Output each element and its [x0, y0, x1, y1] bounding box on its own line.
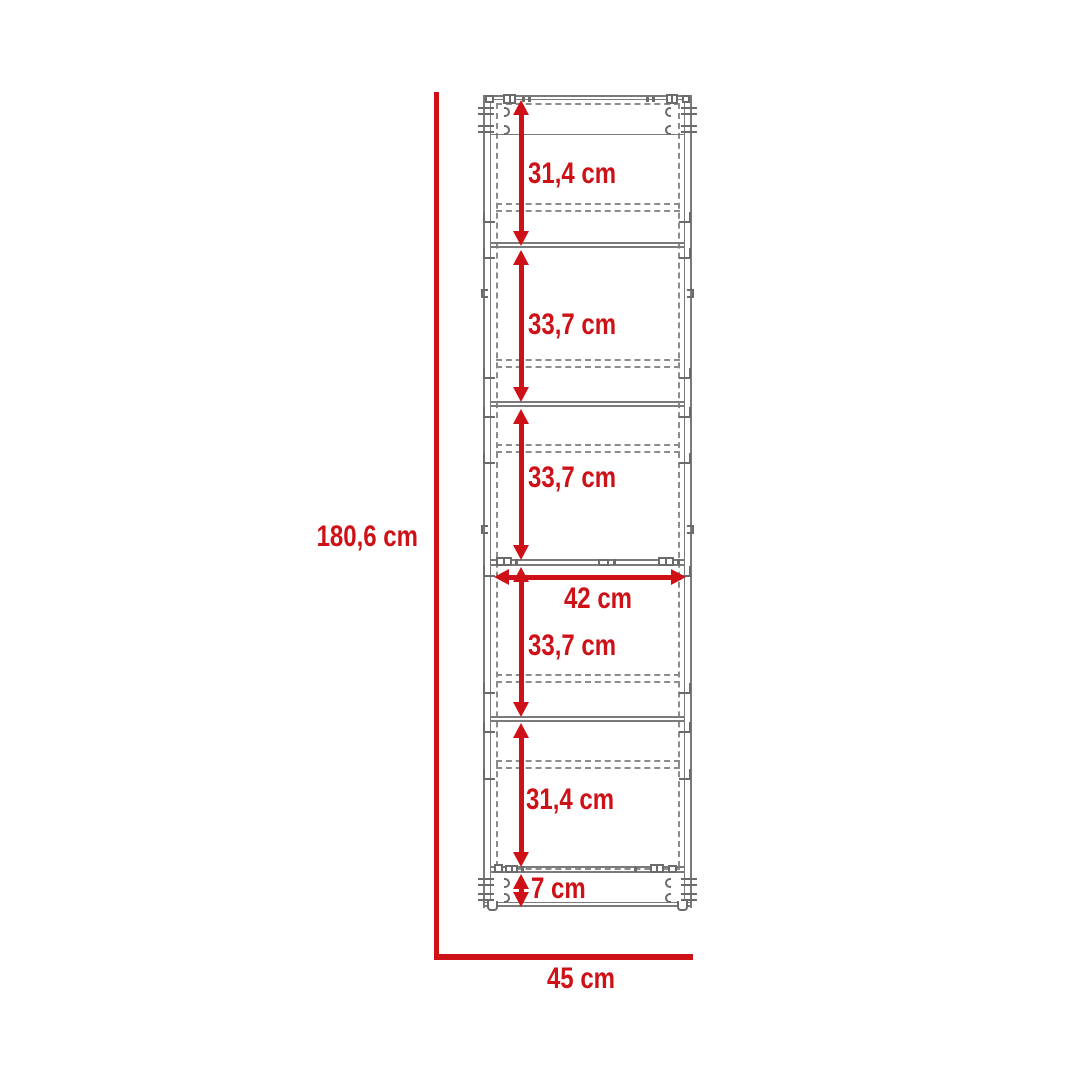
connector-bolt-mark	[681, 878, 697, 886]
connector-bolt-mark	[478, 893, 494, 901]
dowel-mark	[652, 97, 655, 102]
section-1-dimension-label: 31,4 cm	[528, 157, 616, 191]
section-4-dimension-label: 33,7 cm	[528, 629, 616, 663]
shelf-support-bracket	[483, 722, 495, 733]
side-pin-mark	[687, 289, 694, 298]
cam-lock-fitting	[598, 559, 609, 566]
shelf-support-bracket	[483, 212, 495, 223]
connector-cam-mark	[665, 125, 671, 135]
inner-width-label: 42 cm	[518, 582, 678, 616]
total-height-label: 180,6 cm	[290, 520, 418, 554]
cabinet-dimension-diagram: 180,6 cm 45 cm	[0, 0, 1090, 1090]
cam-lock-fitting	[496, 557, 512, 566]
total-width-label: 45 cm	[501, 962, 661, 996]
connector-cam-mark	[665, 878, 671, 888]
connector-cam-mark	[665, 893, 671, 903]
side-pin-mark	[481, 525, 488, 534]
cam-lock-fitting	[650, 864, 664, 873]
section-2-dimension-label: 33,7 cm	[528, 308, 616, 342]
dowel-mark	[646, 97, 649, 102]
base-height-label: 7 cm	[531, 872, 586, 906]
shelf-support-bracket	[483, 248, 495, 259]
connector-bolt-mark	[681, 125, 697, 133]
section-3-dimension-label: 33,7 cm	[528, 461, 616, 495]
shelf-1-bottom-line	[490, 246, 685, 248]
shelf-support-bracket	[679, 212, 691, 223]
shelf-support-bracket	[679, 769, 691, 780]
width-dimension-line	[434, 954, 693, 960]
cam-lock-fitting	[494, 864, 503, 873]
shelf-support-bracket	[679, 368, 691, 379]
right-foot	[677, 901, 688, 911]
shelf-support-bracket	[679, 407, 691, 418]
height-dimension-line	[434, 92, 439, 960]
left-foot	[487, 901, 498, 911]
shelf-4-bottom-line	[490, 720, 685, 722]
connector-bolt-mark	[681, 107, 697, 115]
cabinet-left-dashed-line	[496, 103, 498, 867]
connector-cam-mark	[665, 107, 671, 117]
connector-bolt-mark	[478, 878, 494, 886]
dowel-mark	[613, 559, 616, 565]
shelf-support-bracket	[679, 453, 691, 464]
shelf-support-bracket	[483, 407, 495, 418]
connector-bolt-mark	[681, 893, 697, 901]
cam-lock-fitting	[666, 94, 678, 104]
shelf-support-bracket	[679, 248, 691, 259]
shelf-support-bracket	[483, 769, 495, 780]
connector-bolt-mark	[478, 125, 494, 133]
shelf-support-bracket	[483, 453, 495, 464]
section-5-dimension-label: 31,4 cm	[526, 783, 614, 817]
shelf-support-bracket	[483, 368, 495, 379]
shelf-support-bracket	[679, 722, 691, 733]
dowel-mark	[677, 559, 680, 565]
shelf-2-bottom-line	[490, 405, 685, 407]
cam-lock-fitting	[682, 95, 690, 103]
shelf-support-bracket	[679, 683, 691, 694]
connector-cam-mark	[504, 107, 510, 117]
dowel-mark	[634, 866, 637, 872]
cam-lock-fitting	[668, 865, 677, 873]
cam-lock-fitting	[485, 95, 494, 103]
connector-bolt-mark	[478, 107, 494, 115]
base-height-dimension-arrow	[513, 874, 530, 907]
side-pin-mark	[481, 289, 488, 298]
connector-cam-mark	[504, 878, 510, 888]
shelf-3-bottom-line	[490, 564, 685, 566]
side-pin-mark	[687, 525, 694, 534]
cam-lock-fitting	[658, 557, 674, 566]
shelf-support-bracket	[483, 683, 495, 694]
